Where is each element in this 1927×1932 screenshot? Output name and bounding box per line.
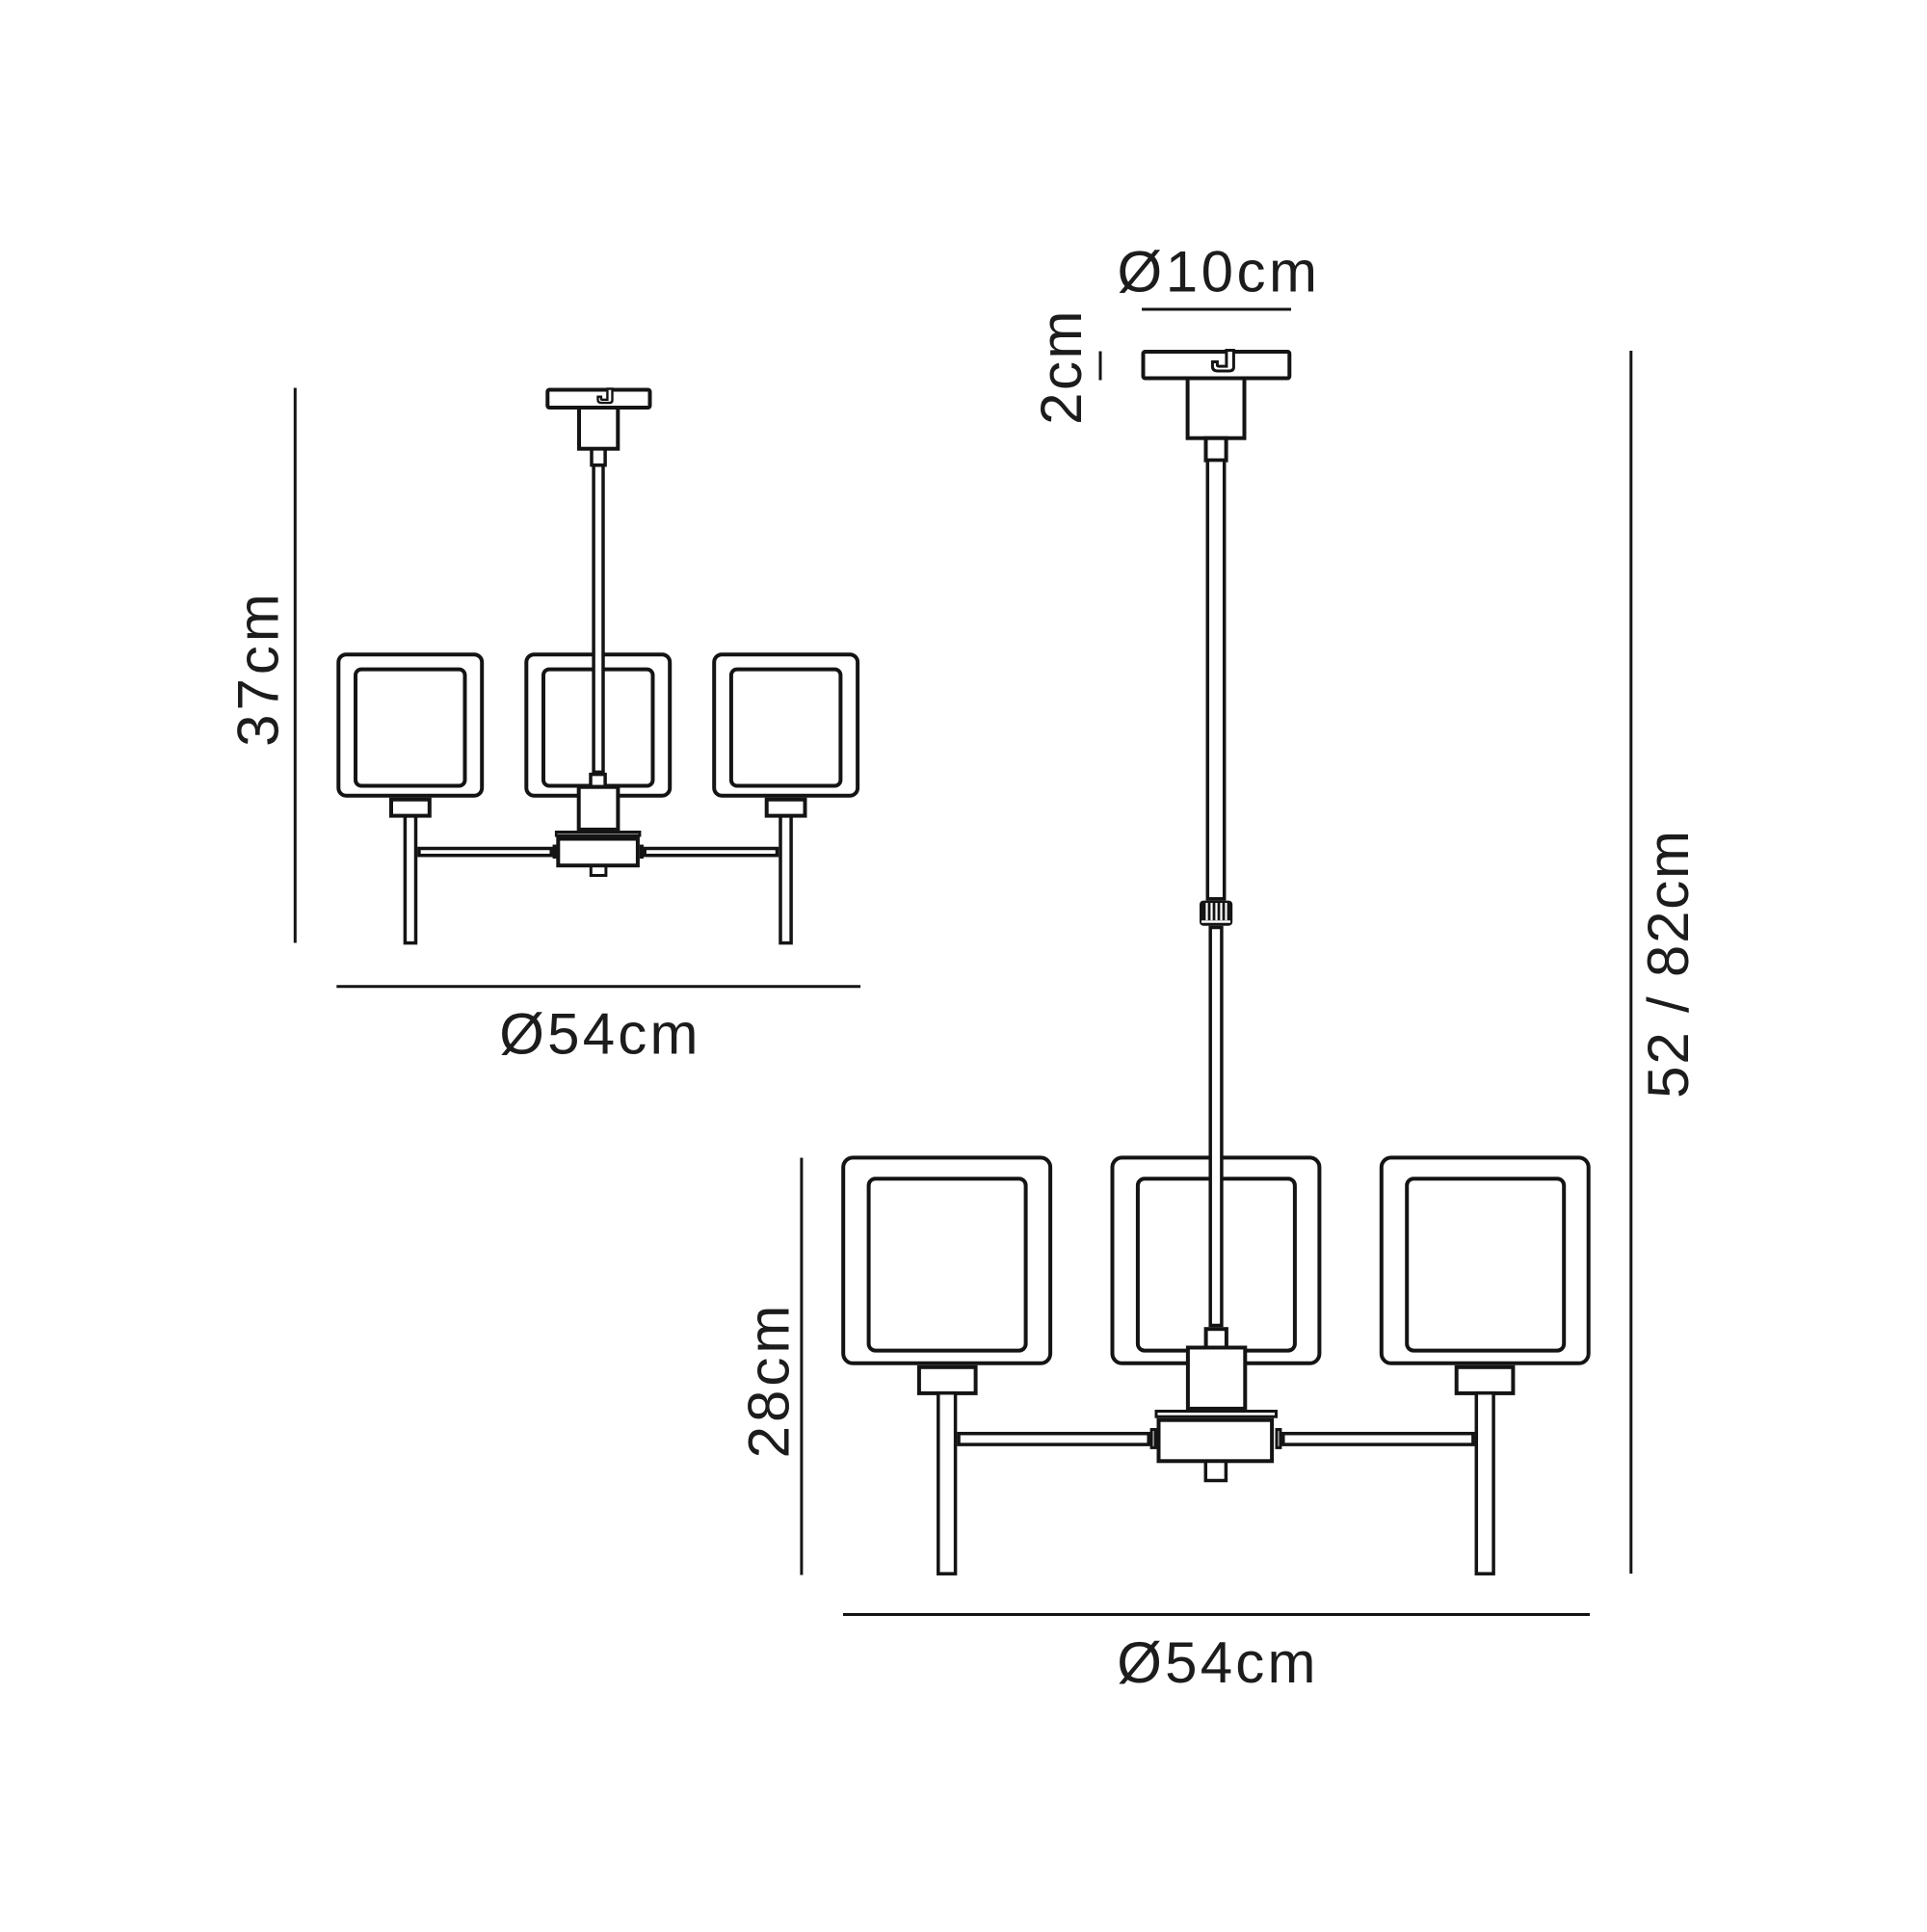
svg-text:Ø54cm: Ø54cm	[1117, 1630, 1318, 1695]
svg-text:Ø10cm: Ø10cm	[1118, 240, 1321, 304]
svg-text:Ø54cm: Ø54cm	[499, 1002, 700, 1067]
svg-text:37cm: 37cm	[226, 590, 291, 747]
svg-text:2cm: 2cm	[1029, 308, 1094, 425]
svg-text:52 / 82cm: 52 / 82cm	[1636, 829, 1701, 1098]
svg-text:28cm: 28cm	[737, 1302, 802, 1459]
